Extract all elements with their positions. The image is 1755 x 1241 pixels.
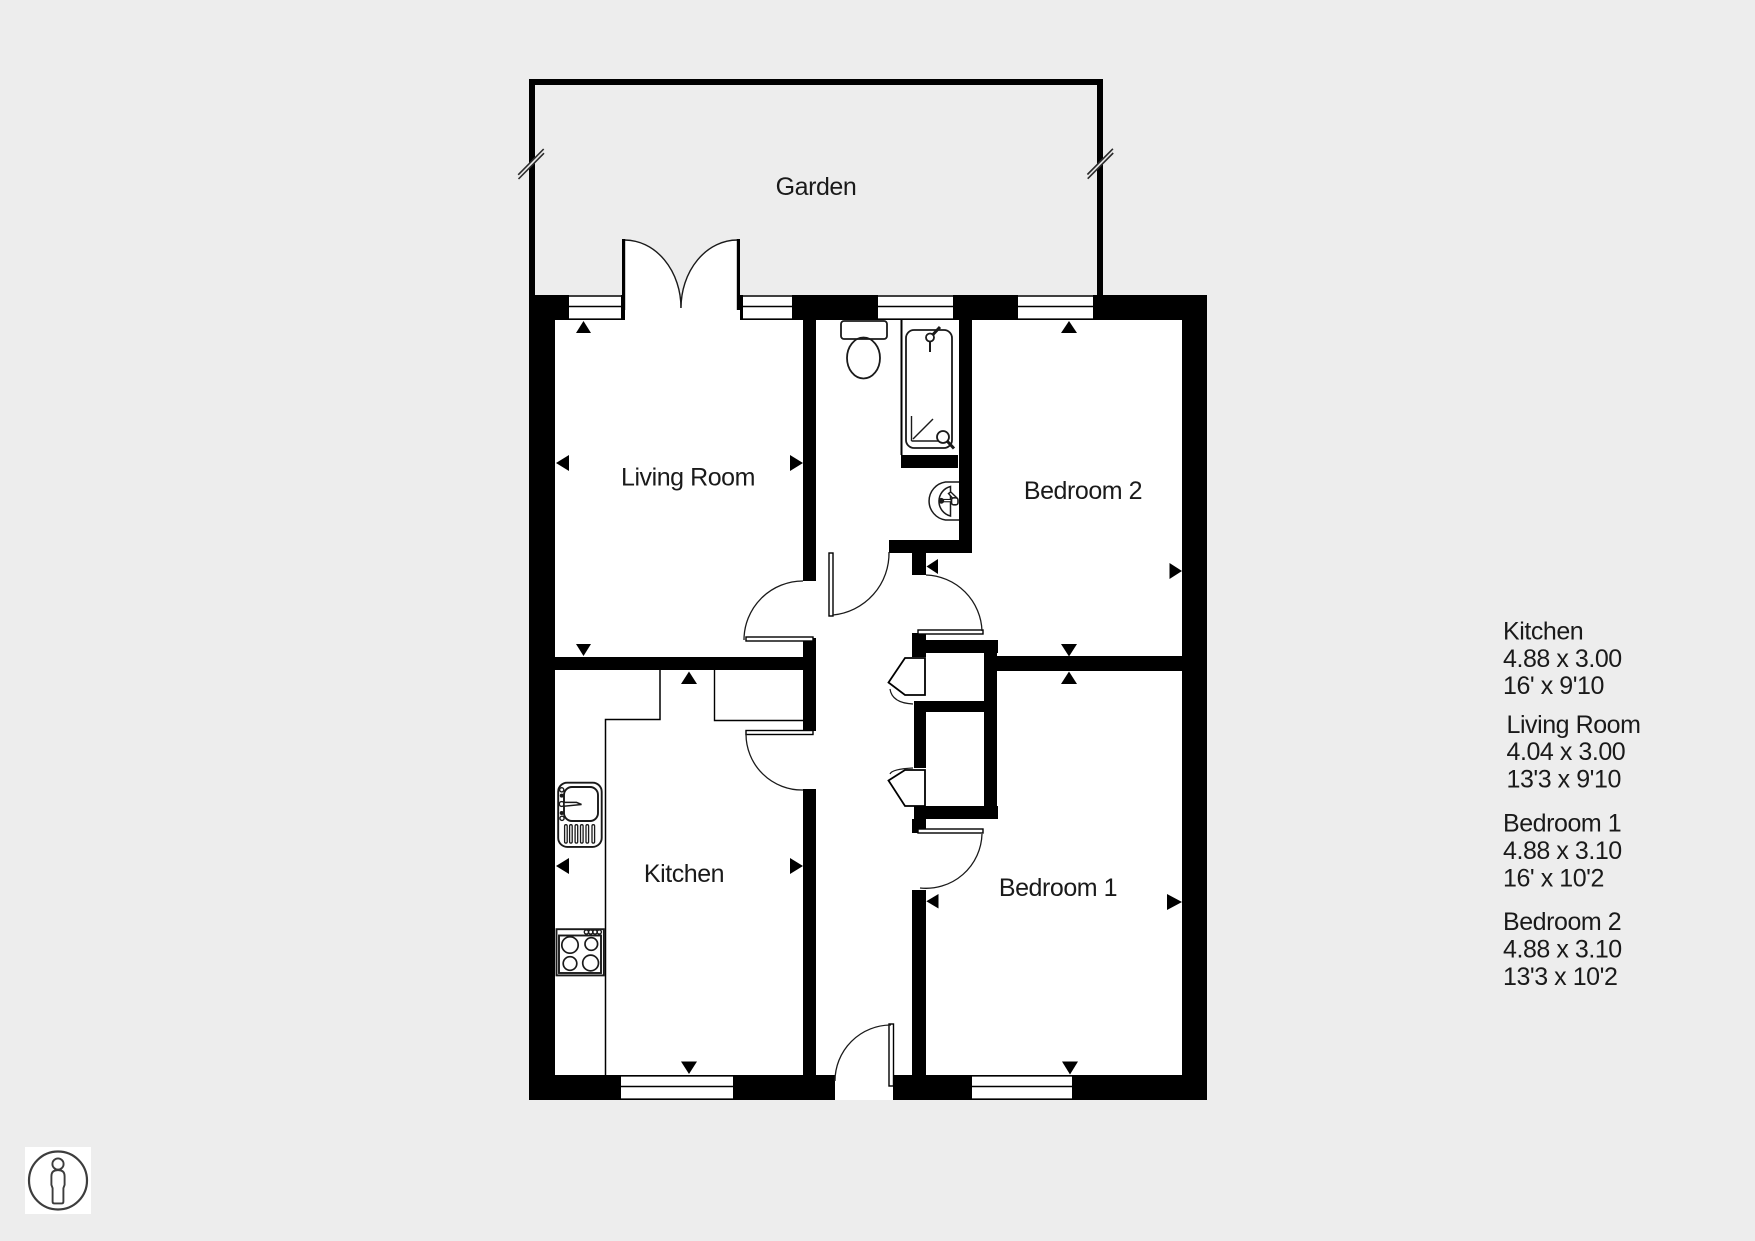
svg-text:13'3 x 9'10: 13'3 x 9'10 <box>1507 766 1621 794</box>
svg-text:Bedroom 2: Bedroom 2 <box>1503 908 1621 936</box>
svg-text:Bedroom 2: Bedroom 2 <box>1024 477 1142 505</box>
svg-text:Garden: Garden <box>776 173 857 201</box>
svg-text:Kitchen: Kitchen <box>644 860 724 888</box>
svg-text:13'3 x 10'2: 13'3 x 10'2 <box>1503 963 1617 991</box>
svg-text:16' x 10'2: 16' x 10'2 <box>1503 865 1604 893</box>
svg-text:4.88 x 3.10: 4.88 x 3.10 <box>1503 936 1622 964</box>
svg-text:Living Room: Living Room <box>1507 711 1641 739</box>
svg-text:4.88 x 3.00: 4.88 x 3.00 <box>1503 645 1622 673</box>
svg-text:Living Room: Living Room <box>621 464 755 492</box>
svg-text:16' x 9'10: 16' x 9'10 <box>1503 672 1604 700</box>
svg-text:Bedroom 1: Bedroom 1 <box>1503 810 1621 838</box>
svg-text:4.04 x 3.00: 4.04 x 3.00 <box>1507 738 1626 766</box>
svg-text:4.88 x 3.10: 4.88 x 3.10 <box>1503 837 1622 865</box>
svg-text:Bedroom 1: Bedroom 1 <box>999 874 1117 902</box>
svg-text:Kitchen: Kitchen <box>1503 618 1583 646</box>
